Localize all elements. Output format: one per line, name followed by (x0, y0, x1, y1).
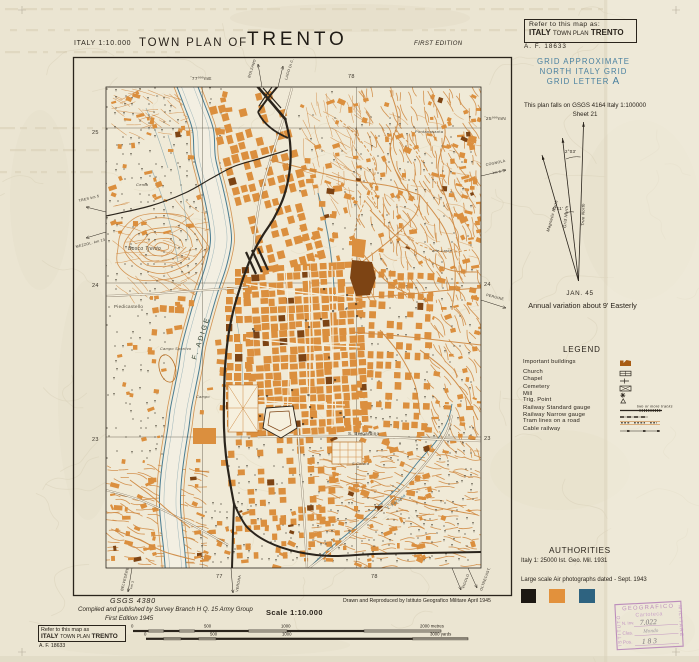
svg-text:1 8 3: 1 8 3 (642, 636, 658, 646)
svg-text:Grid North: Grid North (562, 205, 569, 228)
svg-text:S. Bernardino: S. Bernardino (348, 431, 380, 436)
svg-text:1000: 1000 (282, 631, 292, 636)
svg-text:MILITARE: MILITARE (677, 605, 685, 637)
svg-text:Campo Sportivo: Campo Sportivo (160, 347, 191, 351)
svg-text:2000 metres: 2000 metres (420, 624, 444, 629)
svg-text:Piedicastello: Piedicastello (114, 304, 143, 309)
svg-text:25: 25 (92, 130, 99, 136)
svg-text:Mondo: Mondo (642, 628, 659, 635)
svg-text:78: 78 (348, 74, 355, 80)
svg-text:N. Inv.: N. Inv. (622, 620, 635, 626)
svg-text:Bosco Trento: Bosco Trento (128, 246, 161, 252)
svg-text:Campo: Campo (196, 395, 210, 399)
svg-text:78: 78 (371, 574, 378, 580)
svg-text:24: 24 (92, 283, 99, 289)
svg-text:Centa: Centa (136, 182, 149, 187)
svg-text:Magnetic North: Magnetic North (545, 199, 559, 232)
svg-text:24: 24 (484, 282, 491, 288)
svg-text:True North: True North (580, 203, 586, 226)
svg-text:0: 0 (131, 624, 134, 629)
svg-text:˝77ºººmE: ˝77ºººmE (190, 76, 212, 82)
svg-text:2°03': 2°03' (565, 149, 576, 154)
svg-text:3000 yards: 3000 yards (430, 631, 451, 636)
svg-text:S.Chiara: S.Chiara (352, 462, 369, 466)
svg-text:0: 0 (144, 631, 147, 636)
svg-text:23: 23 (484, 436, 491, 442)
svg-text:500: 500 (204, 624, 212, 629)
svg-text:two or more tracks: two or more tracks (637, 404, 673, 408)
svg-text:1000: 1000 (281, 624, 291, 629)
svg-text:Pontanasanta: Pontanasanta (415, 129, 444, 134)
svg-text:23: 23 (92, 437, 99, 443)
svg-text:500: 500 (210, 631, 218, 636)
svg-text:Clas.: Clas. (622, 630, 633, 637)
svg-text:alle Laste: alle Laste (432, 248, 453, 253)
svg-text:77: 77 (216, 574, 223, 580)
svg-text:Pos.: Pos. (623, 639, 633, 645)
